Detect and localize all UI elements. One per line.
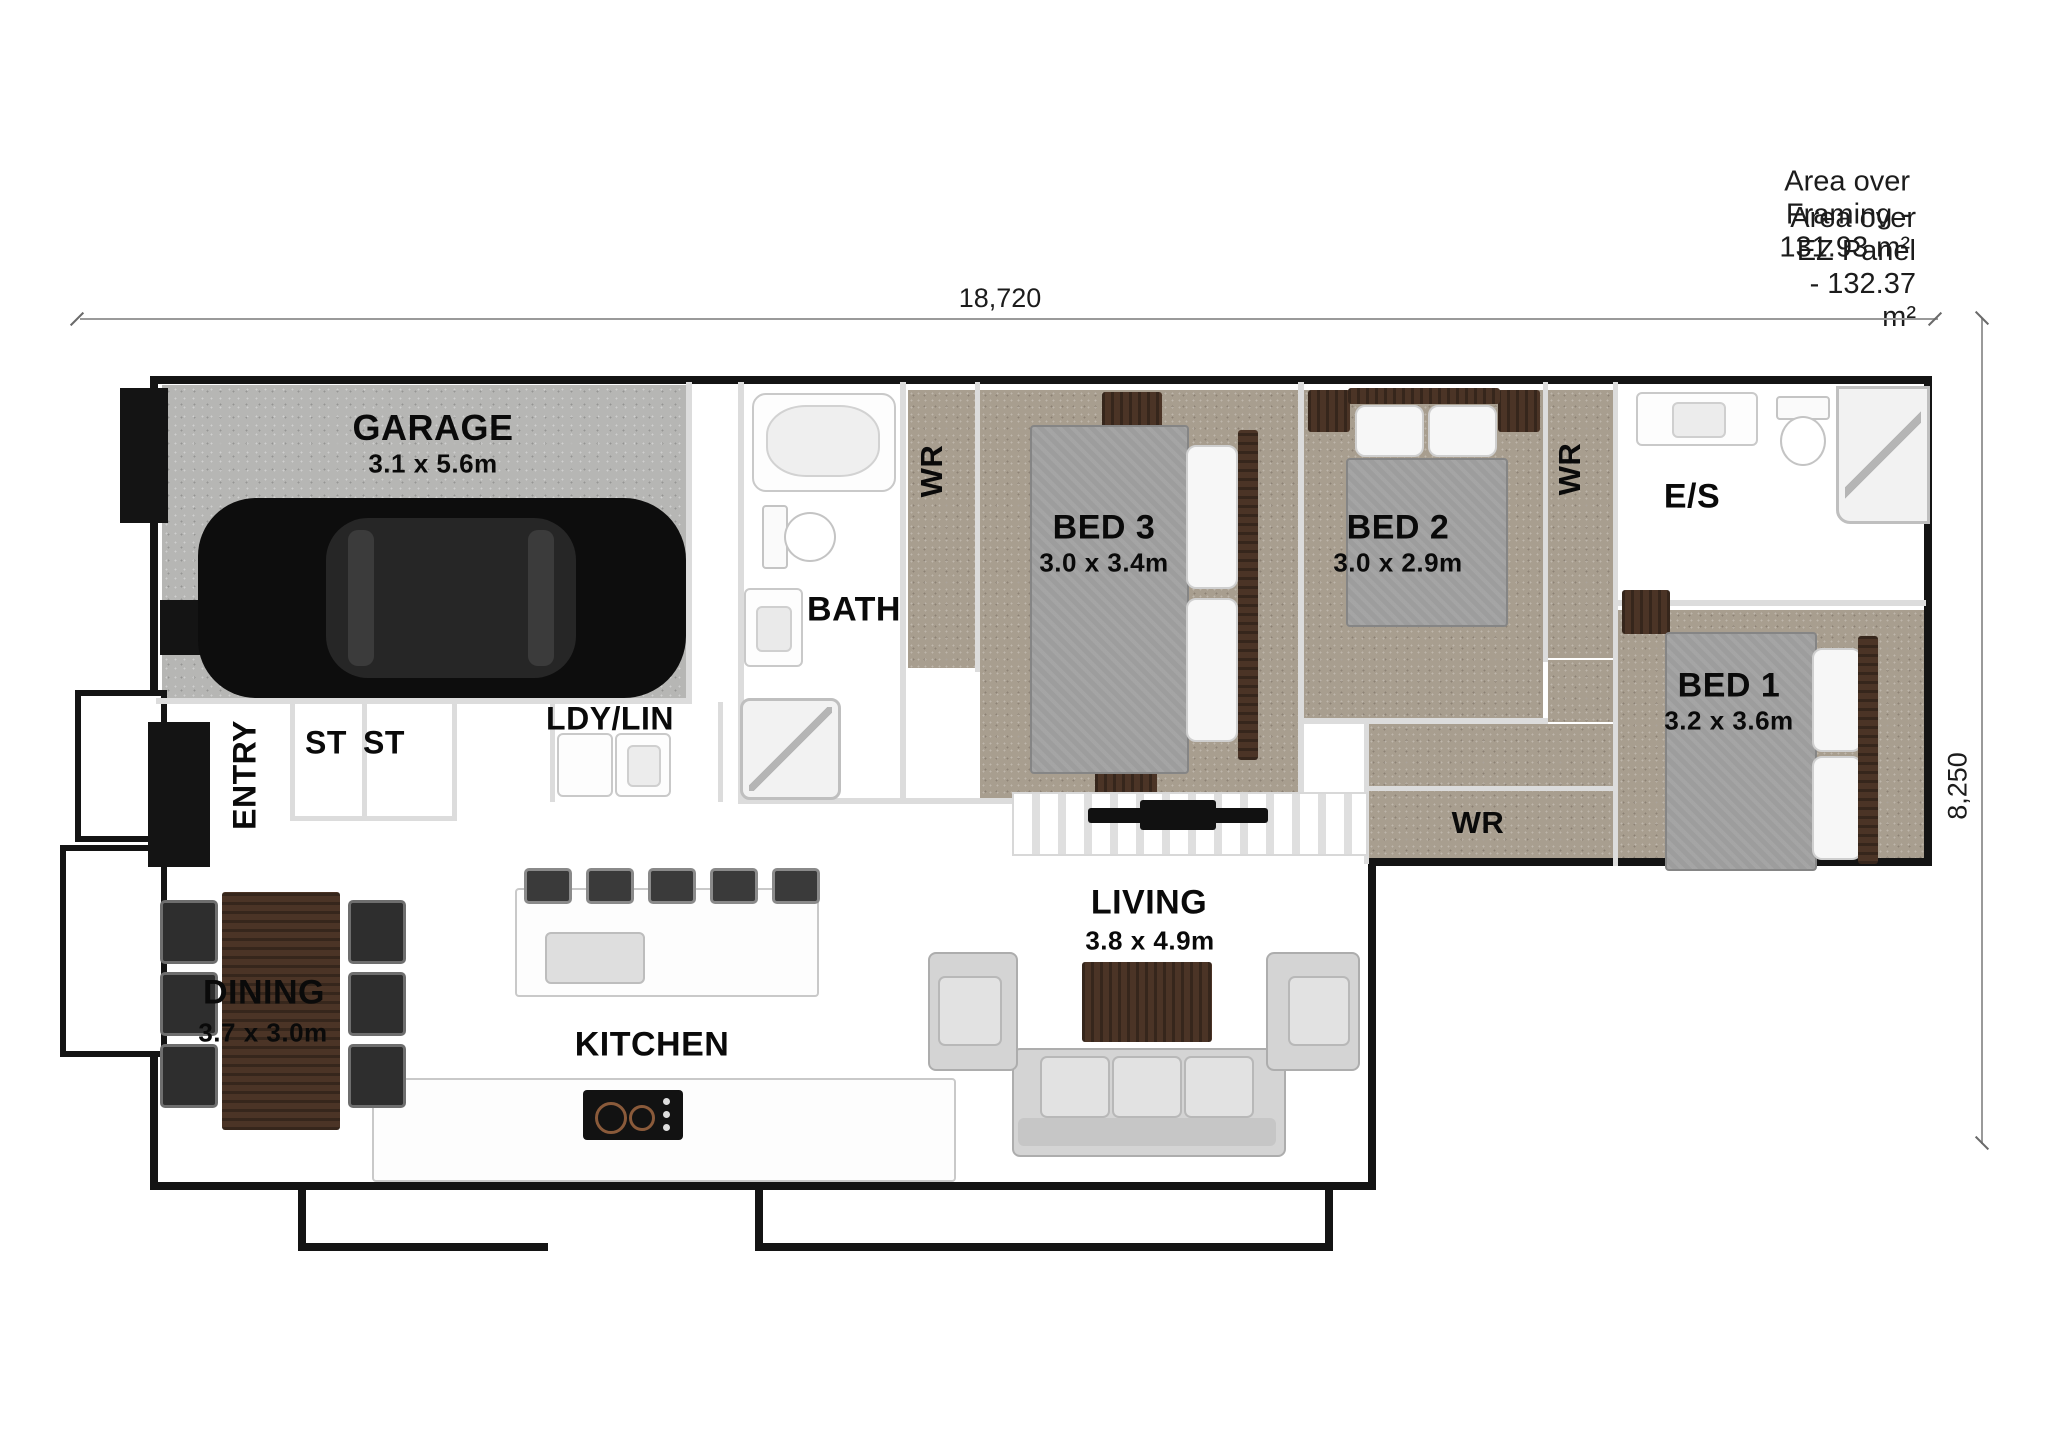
bed3-headboard [1238,430,1258,760]
bed1-pillow-2 [1812,756,1862,860]
room-size-bed1: 3.2 x 3.6m [1664,706,1793,737]
bar-stool-4 [710,868,758,904]
room-label-dining: DINING [203,974,325,1013]
room-size-dining: 3.7 x 3.0m [198,1018,327,1049]
room-size-bed2: 3.0 x 2.9m [1333,548,1462,579]
bar-stool-1 [524,868,572,904]
sofa-back [1018,1118,1276,1146]
island-sink [545,932,645,984]
room-label-bed3: BED 3 [1053,509,1156,548]
garage-side-door-panel [120,388,168,523]
car-rear-window [348,530,374,666]
armchair-right [1266,952,1360,1071]
room-label-st2: ST [363,725,405,762]
bed1-headboard [1858,636,1878,864]
bed3-bed2-wall [1298,382,1304,804]
laundry-tub [615,733,671,797]
right-dimension-line [1981,318,1983,1144]
top-dimension-label: 18,720 [959,283,1042,314]
bed1-nightstand-top [1622,590,1670,634]
sofa [1012,1048,1286,1157]
bed2-nightstand-left [1308,390,1350,432]
floor-plan-canvas: Area over Framing - 131.93 m² Area over … [0,0,2048,1448]
bed1-pillow-1 [1812,648,1862,752]
wr3-floor [1368,724,1618,864]
bed3-duvet [1030,425,1189,774]
bed2-pillow-2 [1428,405,1497,457]
room-label-kitchen: KITCHEN [575,1026,730,1065]
bed2-headboard [1348,388,1500,404]
room-label-bath: BATH [807,591,901,630]
car [198,498,686,698]
dining-chair-5 [348,972,406,1036]
coffee-table [1082,962,1212,1042]
ldy-right-wall [718,702,723,802]
washing-machine [557,733,613,797]
room-size-living: 3.8 x 4.9m [1085,926,1214,957]
room-label-bed1: BED 1 [1678,667,1781,706]
wr3-top-wall [1368,786,1618,791]
bed3-pillow-1 [1186,445,1238,589]
wall-bottom [150,1182,1376,1190]
deck-edge-left-vertical [298,1188,306,1250]
bath-shower [740,698,841,800]
armchair-left [928,952,1018,1071]
cooktop [583,1090,683,1140]
bed3-pillow-2 [1186,598,1238,742]
area-ez-panel-note: Area over EZ Panel - 132.37 m² [1784,202,1916,334]
dining-chair-4 [348,900,406,964]
deck-edge-right [755,1243,1333,1251]
bed2-wr2-wall [1543,382,1548,662]
kitchen-island [515,888,819,997]
bath-vanity [744,588,803,667]
room-label-entry: ENTRY [227,720,264,830]
dining-chair-1 [160,900,218,964]
hall-carpet-floor [1548,660,1613,722]
room-label-wr2: WR [1552,443,1588,496]
wr2-floor [1548,390,1613,658]
room-label-garage: GARAGE [352,407,513,449]
room-label-ldy-lin: LDY/LIN [546,701,674,738]
tv-bracket [1140,800,1216,830]
room-size-bed3: 3.0 x 3.4m [1039,548,1168,579]
room-label-living: LIVING [1091,884,1207,923]
bar-stool-2 [586,868,634,904]
bar-stool-3 [648,868,696,904]
bed2-nightstand-right [1498,390,1540,432]
room-label-wr3: WR [1452,805,1505,841]
room-label-bed2: BED 2 [1347,509,1450,548]
wall-right-living [1368,858,1376,1190]
top-dimension-line [80,318,1938,320]
st-left-wall [290,702,295,820]
bar-stool-5 [772,868,820,904]
es-vanity [1636,392,1758,446]
room-label-ensuite: E/S [1664,478,1720,517]
garage-right-wall [686,382,692,702]
deck-edge-mid-vertical [755,1188,763,1250]
room-size-garage: 3.1 x 5.6m [368,449,497,480]
bathtub [752,393,896,492]
room-label-st1: ST [305,725,347,762]
dining-chair-6 [348,1044,406,1108]
deck-edge-right-vertical [1325,1188,1333,1250]
bed1-left-wall [1613,606,1618,866]
bed2-pillow-1 [1355,405,1424,457]
car-windshield [528,530,554,666]
wr1-right-wall [975,382,980,672]
wall-top [150,376,1932,384]
left-lower-bay-window [60,845,167,1057]
st-bottom-wall [290,816,457,821]
deck-edge-left [298,1243,548,1251]
room-label-wr1: WR [914,445,950,498]
es-shower [1836,386,1930,524]
entry-door-panel [148,722,210,867]
dining-chair-3 [160,1044,218,1108]
right-dimension-label: 8,250 [1943,752,1974,820]
wr1-floor [908,390,976,668]
st-right-wall [452,702,457,820]
bed2-bottom-wall [1303,718,1548,724]
